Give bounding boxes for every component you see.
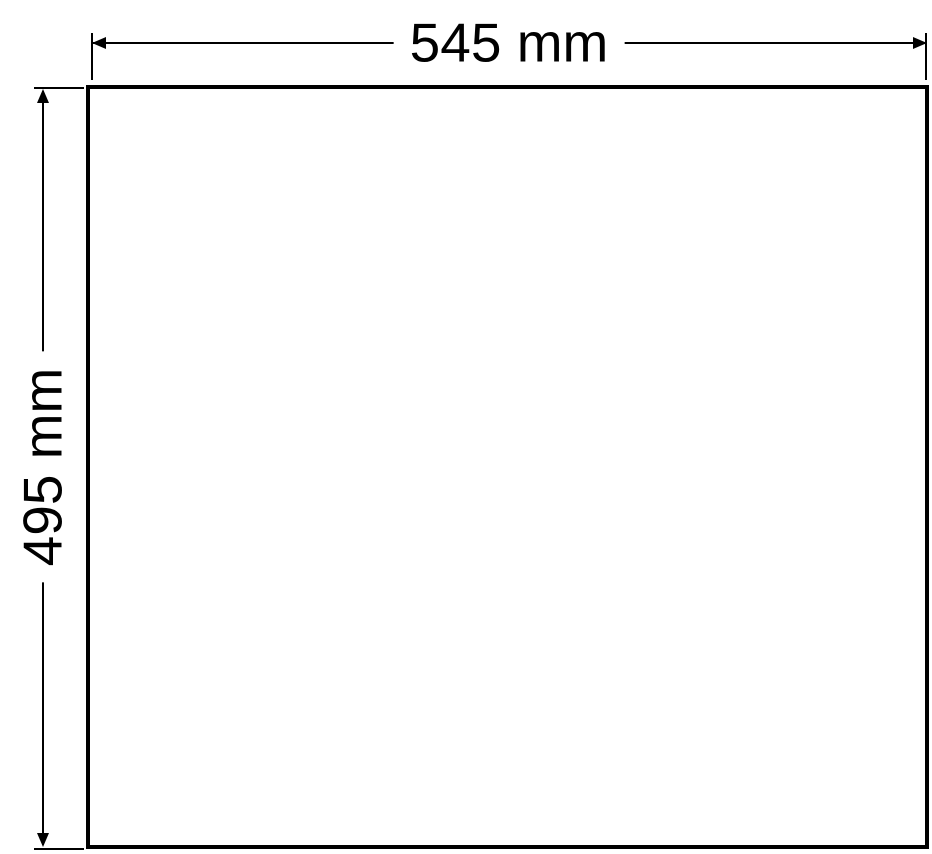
height-extension-line-bottom (34, 848, 84, 850)
arrow-left-icon (92, 37, 106, 49)
panel-outline (86, 85, 929, 849)
arrow-up-icon (37, 89, 49, 103)
arrow-down-icon (37, 833, 49, 847)
height-dimension-label: 495 mm (16, 352, 71, 583)
arrow-right-icon (913, 37, 927, 49)
width-dimension-label: 545 mm (394, 16, 625, 71)
dimension-diagram: 545 mm 495 mm (0, 0, 932, 854)
